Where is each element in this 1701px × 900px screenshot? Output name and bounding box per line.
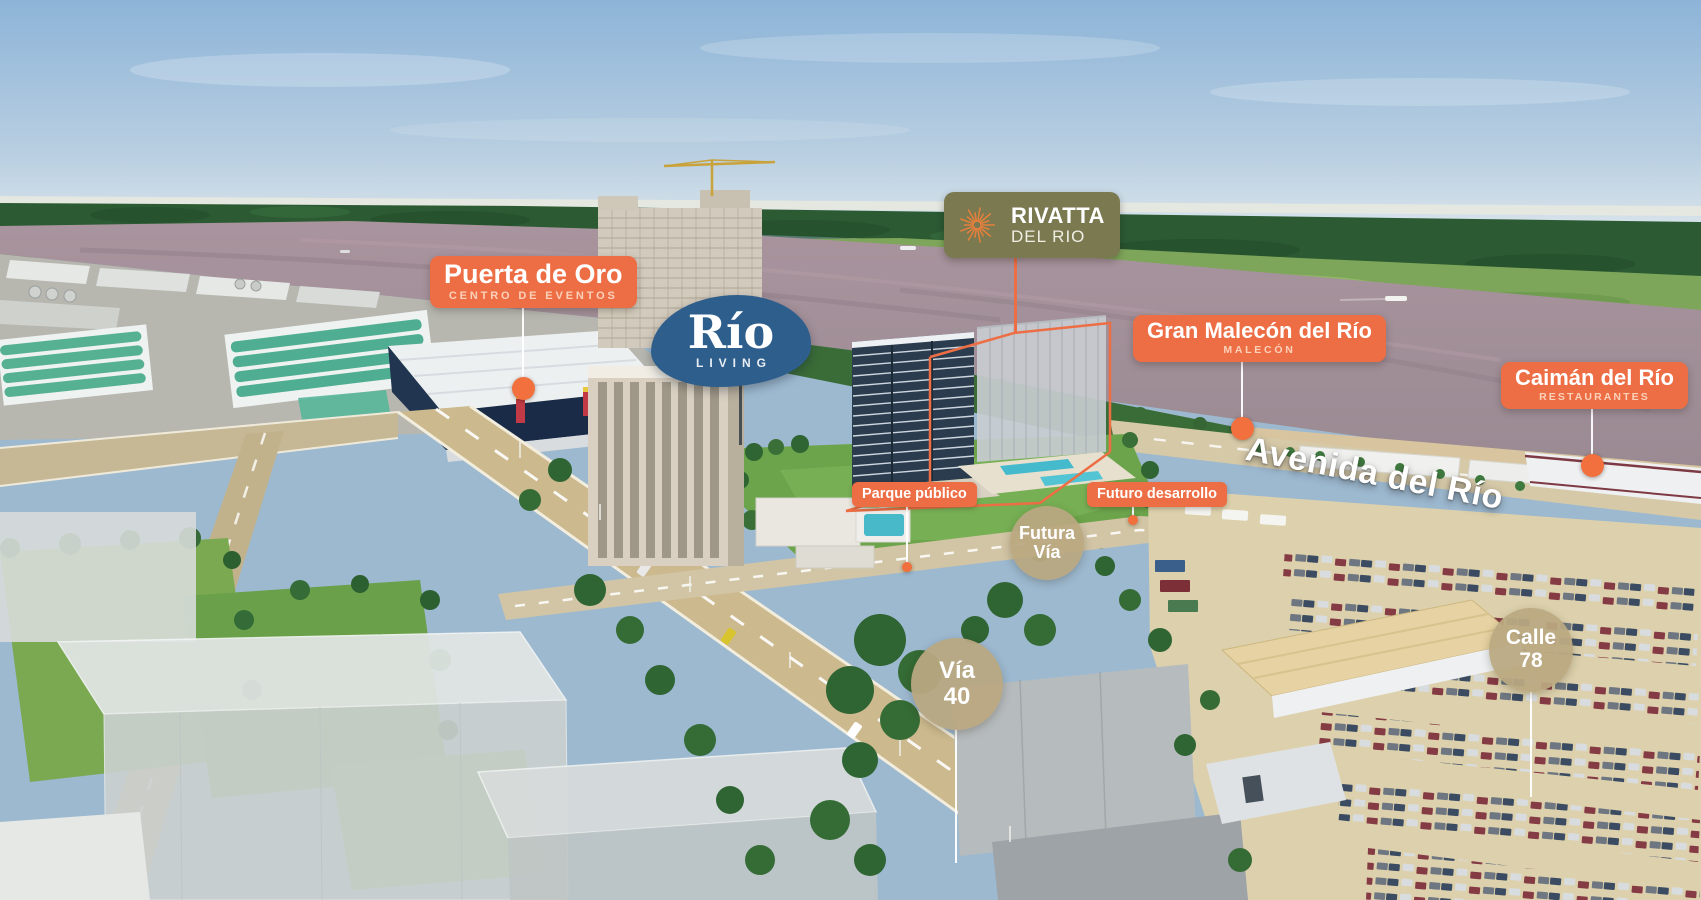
label-subtitle: CENTRO DE EVENTOS <box>444 290 623 302</box>
marker-dot <box>512 377 535 400</box>
label-rivatta-del-rio: RIVATTA DEL RIO <box>944 192 1120 258</box>
logo-pole-line <box>739 383 742 445</box>
label-title: Caimán del Río <box>1515 366 1674 390</box>
badge-line2: 78 <box>1519 650 1542 673</box>
connector-line <box>955 729 957 863</box>
connector-line <box>906 507 908 565</box>
aerial-site-map: Puerta de Oro CENTRO DE EVENTOS Río LIVI… <box>0 0 1701 900</box>
badge-line1: Futura <box>1019 524 1075 543</box>
connector-line <box>522 303 524 378</box>
boat <box>1385 296 1407 301</box>
badge-via-40: Vía 40 <box>911 638 1003 730</box>
sky <box>0 0 1701 222</box>
badge-line2: Vía <box>1033 543 1060 562</box>
boat <box>900 246 916 250</box>
badge-line1: Vía <box>939 658 975 684</box>
chip-futuro-desarrollo: Futuro desarrollo <box>1087 482 1227 507</box>
label-gran-malecon: Gran Malecón del Río MALECÓN <box>1133 315 1386 362</box>
label-puerta-de-oro: Puerta de Oro CENTRO DE EVENTOS <box>430 256 637 308</box>
chip-parque-publico: Parque público <box>852 482 977 507</box>
logo-title: Río <box>688 312 774 353</box>
badge-line2: 40 <box>944 684 971 710</box>
connector-line <box>1591 403 1593 456</box>
label-caiman-del-rio: Caimán del Río RESTAURANTES <box>1501 362 1688 409</box>
marker-dot <box>1581 454 1604 477</box>
badge-calle-78: Calle 78 <box>1489 608 1573 692</box>
rivatta-rays-icon <box>956 202 1002 248</box>
label-subtitle: DEL RIO <box>1011 228 1105 245</box>
logo-subtitle: LIVING <box>696 356 772 370</box>
rio-living-tower <box>588 366 744 566</box>
marker-dot-small <box>1128 515 1138 525</box>
connector-line <box>1530 691 1532 797</box>
boat <box>340 250 350 253</box>
aerial-photo-background <box>0 0 1701 900</box>
label-title: Puerta de Oro <box>444 260 623 289</box>
label-subtitle: RESTAURANTES <box>1515 391 1674 403</box>
badge-futura-via: Futura Vía <box>1010 506 1084 580</box>
label-title: RIVATTA <box>1011 205 1105 227</box>
connector-line-orange <box>1014 258 1017 334</box>
label-title: Gran Malecón del Río <box>1147 319 1372 343</box>
badge-line1: Calle <box>1506 627 1556 650</box>
label-subtitle: MALECÓN <box>1147 344 1372 356</box>
connector-line <box>1241 357 1243 419</box>
marker-dot-small <box>902 562 912 572</box>
